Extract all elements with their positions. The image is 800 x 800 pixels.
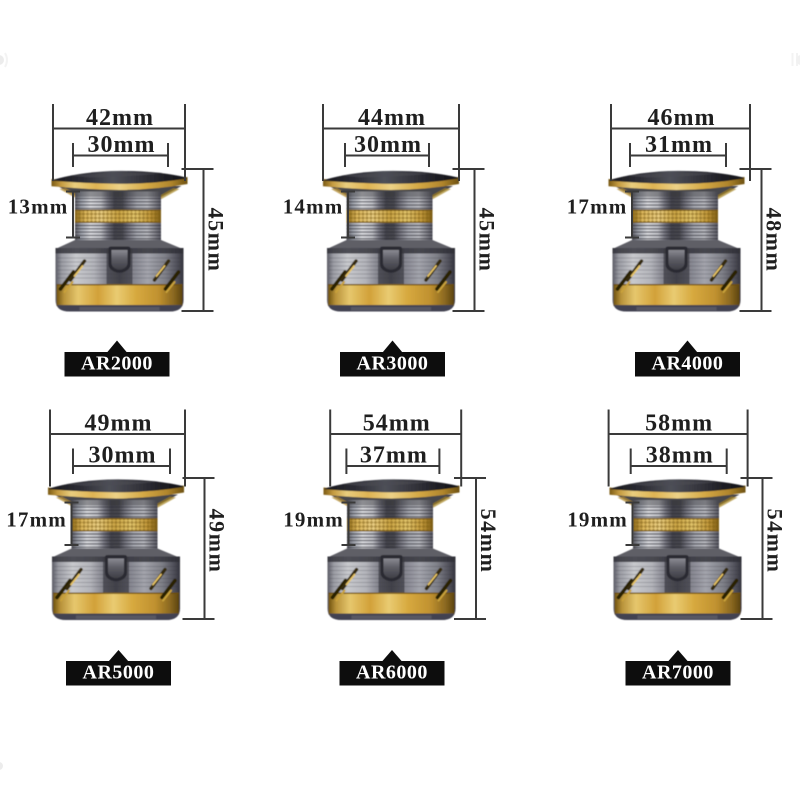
svg-text:45mm: 45mm xyxy=(475,208,500,273)
svg-text:42mm: 42mm xyxy=(86,105,154,131)
svg-text:AR6000: AR6000 xyxy=(356,662,428,684)
svg-text:AR4000: AR4000 xyxy=(652,353,724,375)
svg-text:48mm: 48mm xyxy=(762,208,787,273)
svg-text:14mm: 14mm xyxy=(283,195,344,219)
svg-text:30mm: 30mm xyxy=(89,443,157,469)
svg-text:38mm: 38mm xyxy=(646,443,714,469)
svg-text:45mm: 45mm xyxy=(204,208,229,273)
svg-text:30mm: 30mm xyxy=(88,132,156,158)
svg-text:54mm: 54mm xyxy=(763,509,788,574)
svg-text:17mm: 17mm xyxy=(567,195,628,219)
svg-text:31mm: 31mm xyxy=(645,132,713,158)
svg-text:54mm: 54mm xyxy=(476,509,501,574)
svg-text:AR7000: AR7000 xyxy=(642,662,714,684)
svg-text:13mm: 13mm xyxy=(8,195,69,219)
svg-text:54mm: 54mm xyxy=(363,411,431,437)
svg-text:19mm: 19mm xyxy=(567,508,628,532)
svg-text:37mm: 37mm xyxy=(360,443,428,469)
svg-text:49mm: 49mm xyxy=(85,411,153,437)
svg-text:19mm: 19mm xyxy=(283,508,344,532)
svg-text:AR5000: AR5000 xyxy=(83,662,155,684)
svg-text:AR2000: AR2000 xyxy=(81,353,153,375)
svg-text:30mm: 30mm xyxy=(354,132,422,158)
svg-text:46mm: 46mm xyxy=(648,105,716,131)
svg-text:44mm: 44mm xyxy=(358,105,426,131)
svg-text:58mm: 58mm xyxy=(645,411,713,437)
svg-text:AR3000: AR3000 xyxy=(357,353,429,375)
svg-text:49mm: 49mm xyxy=(205,509,230,574)
svg-text:17mm: 17mm xyxy=(6,508,67,532)
